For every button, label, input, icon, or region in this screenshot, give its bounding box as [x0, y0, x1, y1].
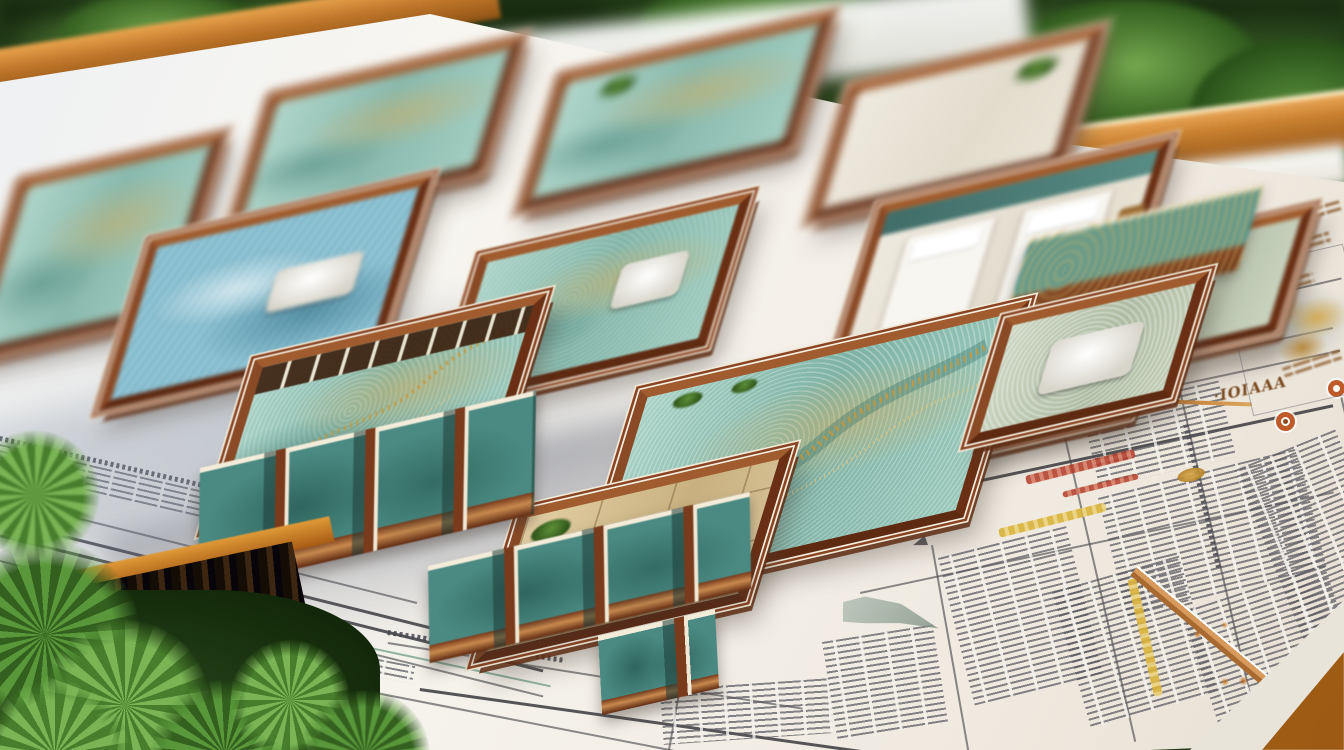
circle-marker	[1276, 412, 1295, 431]
scene: ·IOIAAA	[0, 0, 1344, 750]
arrow-mark	[911, 536, 928, 550]
annotation-block	[822, 624, 948, 740]
